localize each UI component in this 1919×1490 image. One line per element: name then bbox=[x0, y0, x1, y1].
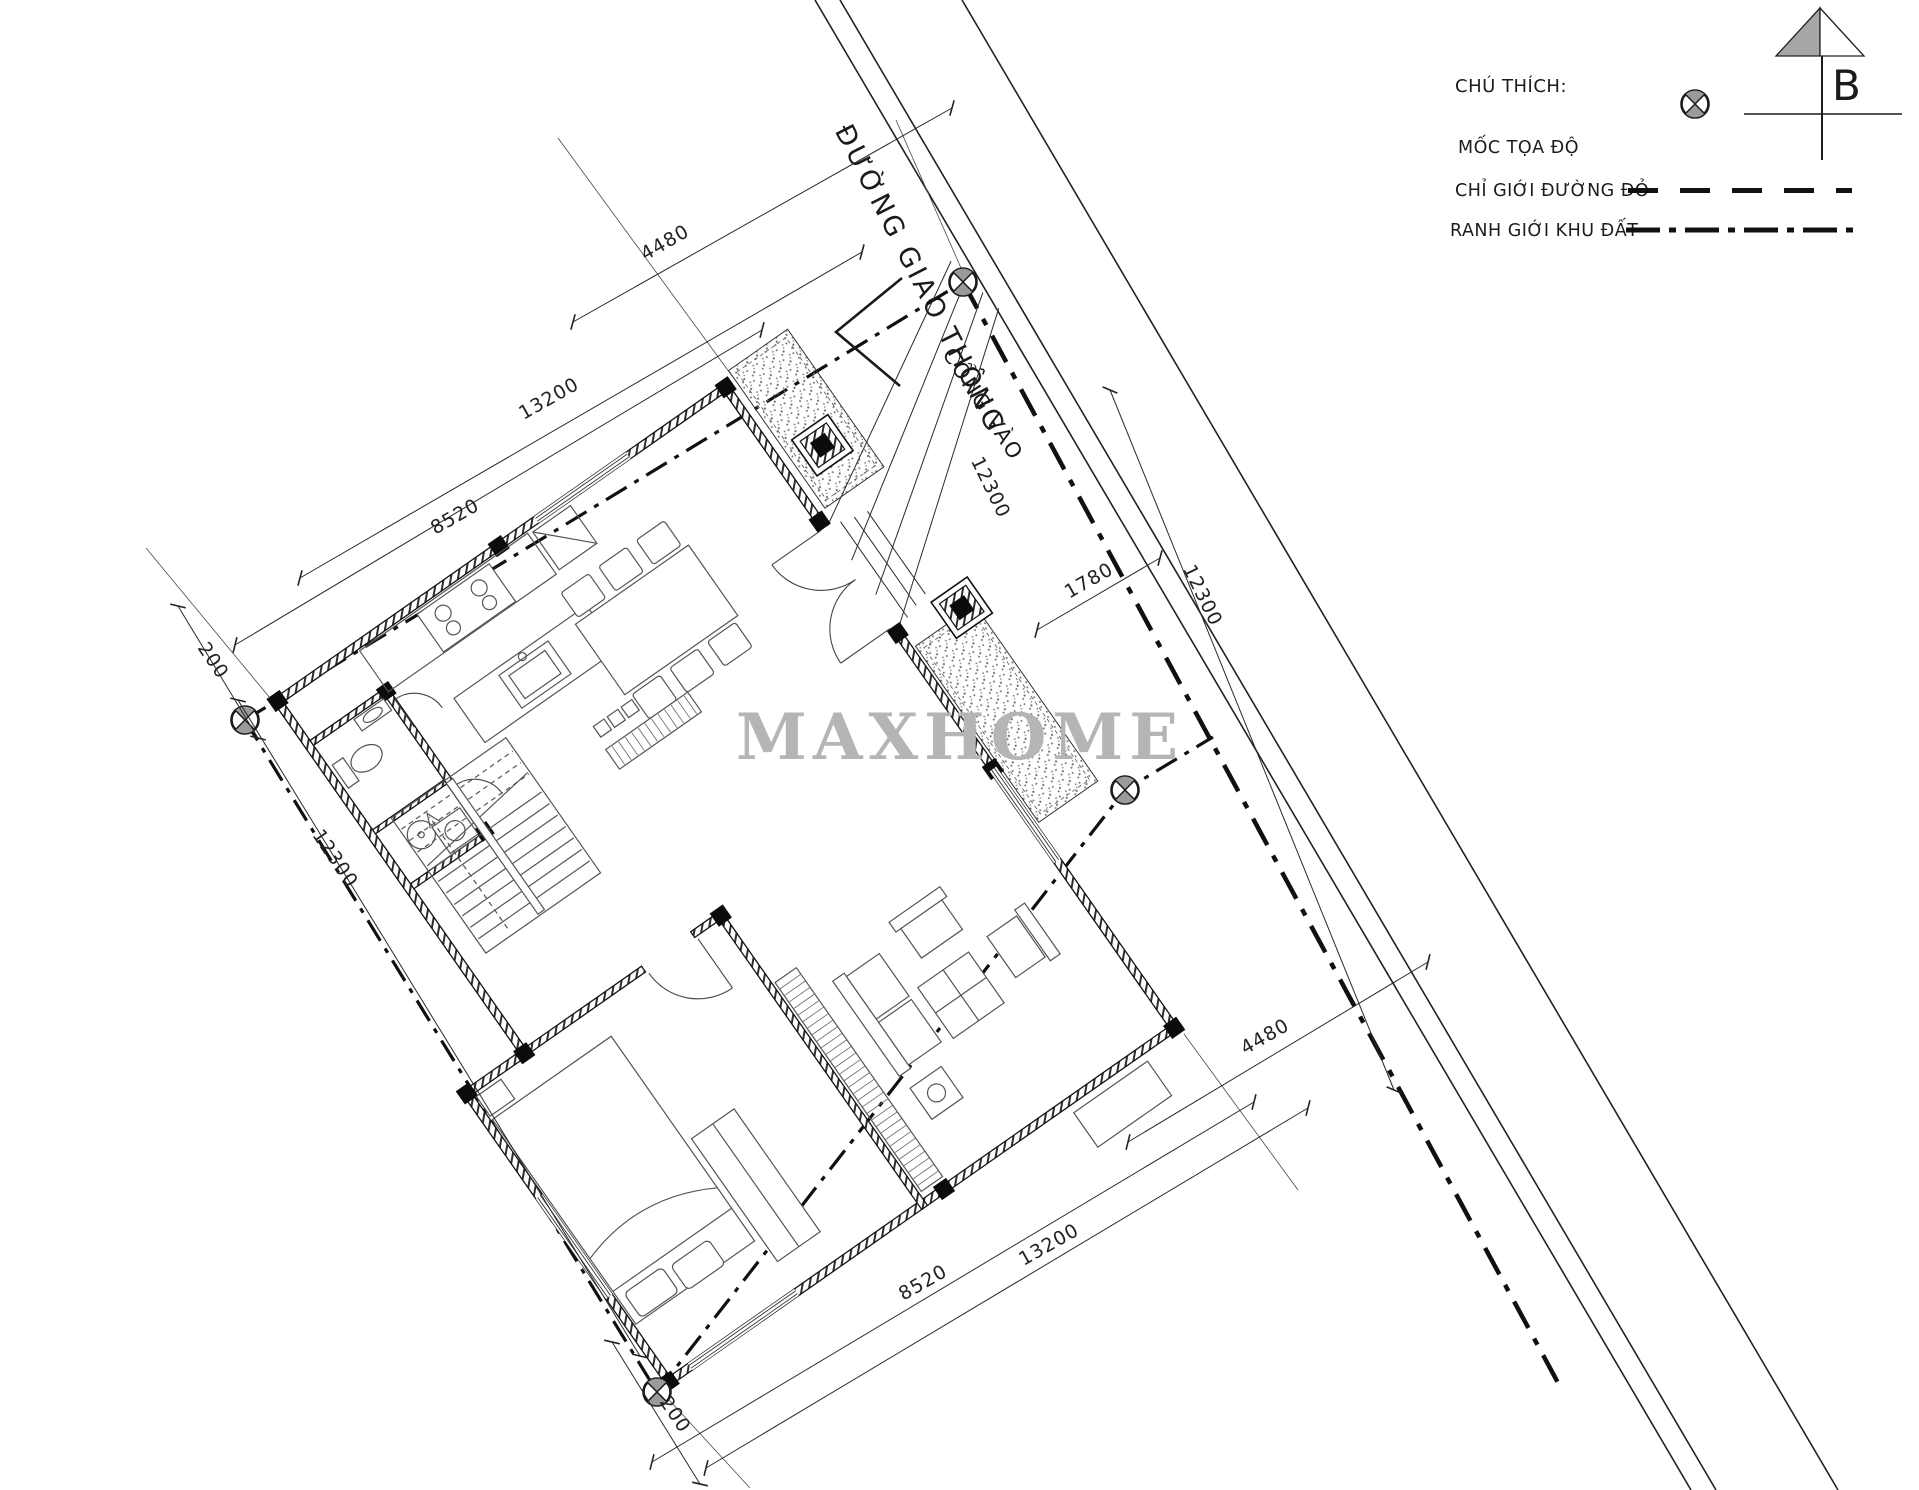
dimension-line bbox=[1128, 962, 1428, 1142]
dash-dot-line-icon bbox=[1626, 226, 1856, 234]
dashed-line-icon bbox=[1628, 188, 1852, 193]
survey-marker-icon bbox=[950, 269, 977, 296]
dimension-label-bottom-8520: 8520 bbox=[895, 1260, 951, 1305]
dimension-tick bbox=[604, 1340, 620, 1344]
legend-item-chi-gioi-duong-do: CHỈ GIỚI ĐƯỜNG ĐỎ bbox=[1455, 181, 1649, 201]
dimension-label-left-12300: 12300 bbox=[308, 825, 363, 892]
dimension-label-topleft-8520: 8520 bbox=[427, 494, 483, 539]
dimension-tick bbox=[704, 1460, 708, 1476]
site-plan-canvas: ĐƯỜNG GIAO THÔNG bbox=[0, 0, 1919, 1490]
legend-item-moc-toa-do: MỐC TỌA ĐỘ bbox=[1458, 138, 1579, 158]
house-plan bbox=[207, 223, 1426, 1430]
dimension-label-road-12300: 12300 bbox=[1178, 561, 1226, 629]
dimension-tick bbox=[571, 314, 575, 329]
entry-door bbox=[772, 530, 890, 663]
dimension-tick bbox=[692, 1482, 708, 1486]
dimension-tick bbox=[650, 1454, 654, 1470]
dimension-tick bbox=[230, 698, 246, 702]
survey-marker-icon bbox=[1112, 777, 1139, 804]
dimension-tick bbox=[760, 322, 764, 338]
dimension-tick bbox=[1252, 1094, 1256, 1110]
outdoor-step bbox=[1074, 1061, 1172, 1147]
dimension-tick bbox=[1103, 387, 1118, 393]
dimension-label-walkway-1780: 1780 bbox=[1061, 558, 1117, 603]
north-label: B bbox=[1832, 61, 1861, 110]
dimension-lines: 4480132008520200123002001320085204480123… bbox=[170, 100, 1430, 1486]
gate-label: CỔNG VÀO bbox=[938, 341, 1032, 465]
dimension-tick bbox=[1306, 1100, 1310, 1116]
dimension-tick bbox=[1426, 954, 1430, 970]
dimension-label-topleft-13200: 13200 bbox=[515, 373, 583, 424]
dimension-tick bbox=[1035, 622, 1039, 637]
sofa-set bbox=[824, 852, 1096, 1120]
dimension-line bbox=[238, 700, 640, 1356]
survey-marker-icon bbox=[1677, 86, 1713, 122]
dimension-tick bbox=[170, 604, 186, 608]
north-arrow: B bbox=[1744, 8, 1902, 160]
bedroom bbox=[475, 939, 876, 1349]
dining-table bbox=[556, 517, 757, 722]
dimension-tick bbox=[298, 570, 302, 585]
gate-arrow-icon bbox=[836, 278, 902, 386]
staircase bbox=[391, 738, 600, 953]
dimension-label-bottomright-4480: 4480 bbox=[1237, 1014, 1293, 1059]
dimension-tick bbox=[233, 637, 237, 653]
legend-item-ranh-gioi-khu-dat: RANH GIỚI KHU ĐẤT bbox=[1450, 221, 1638, 241]
dimension-tick bbox=[860, 244, 864, 259]
dimension-label-left-200: 200 bbox=[193, 638, 233, 683]
dimension-tick bbox=[1126, 1134, 1130, 1150]
dimension-tick bbox=[950, 100, 954, 115]
dimension-tick bbox=[1158, 550, 1162, 565]
watermark: MAXHOME bbox=[720, 700, 1200, 775]
legend-title: CHÚ THÍCH: bbox=[1455, 76, 1567, 97]
